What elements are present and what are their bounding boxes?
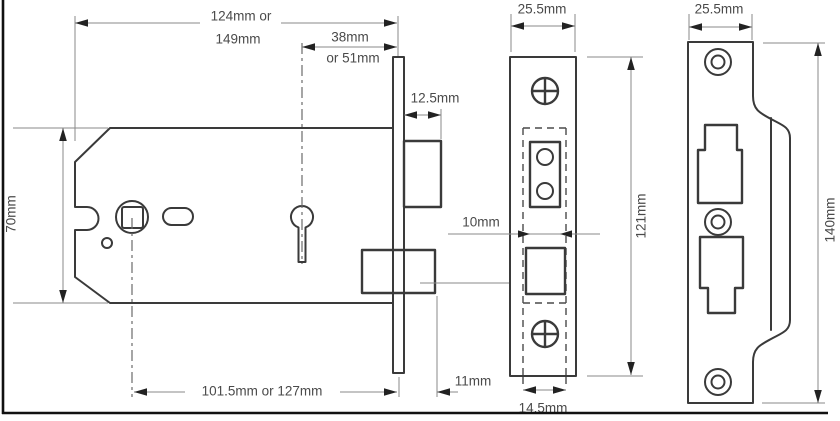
arrow-right-icon bbox=[739, 23, 752, 31]
arrow-right-icon bbox=[562, 22, 575, 30]
dim-strike-height-label: 140mm bbox=[823, 197, 838, 242]
deadbolt-cutout bbox=[700, 237, 743, 313]
dim-case-length-label-1: 124mm or bbox=[211, 9, 272, 24]
strike-screw-hole-bottom bbox=[705, 369, 731, 395]
arrow-down-icon bbox=[814, 390, 822, 403]
arrow-right-icon bbox=[553, 386, 566, 394]
arrow-left-icon bbox=[437, 388, 450, 396]
dim-backset-label-2: or 51mm bbox=[326, 51, 379, 66]
arrow-right-icon bbox=[384, 388, 397, 396]
dim-forend-height-label: 121mm bbox=[634, 193, 649, 238]
dim-case-height-label: 70mm bbox=[4, 195, 19, 233]
dim-latch-projection: 12.5mm bbox=[404, 91, 459, 140]
diagram-canvas: 124mm or 149mm 38mm or 51mm 12.5mm 70mm bbox=[0, 0, 840, 421]
arrow-down-icon bbox=[59, 290, 67, 303]
dim-latch-width: 10mm bbox=[448, 215, 600, 238]
lock-dimension-diagram: 124mm or 149mm 38mm or 51mm 12.5mm 70mm bbox=[0, 0, 840, 421]
arrow-right-icon bbox=[384, 43, 397, 51]
deadbolt-side bbox=[362, 250, 435, 293]
arrow-left-icon bbox=[511, 22, 524, 30]
arrow-right-icon bbox=[384, 19, 397, 27]
forend-dimensions: 25.5mm 10mm 121mm 14.5mm bbox=[448, 2, 649, 416]
dim-forend-width-label: 25.5mm bbox=[518, 2, 567, 17]
dim-bolt-throw: 11mm bbox=[437, 296, 491, 397]
dim-case-height: 70mm bbox=[4, 128, 109, 303]
arrow-left-icon bbox=[523, 386, 536, 394]
faceplate-edge bbox=[393, 57, 404, 373]
arrow-left-icon bbox=[75, 19, 88, 27]
dim-backset-label-1: 38mm bbox=[331, 30, 369, 45]
arrow-up-icon bbox=[814, 43, 822, 56]
dim-backset: 38mm or 51mm bbox=[302, 30, 397, 66]
strike-plate-outline bbox=[688, 42, 790, 403]
latch-cutout bbox=[698, 125, 742, 203]
arrow-left-icon bbox=[404, 111, 417, 119]
arrow-up-icon bbox=[627, 57, 635, 70]
dim-latch-width-label: 10mm bbox=[462, 215, 500, 230]
dim-case-length: 124mm or 149mm bbox=[75, 9, 398, 142]
latch-bolt-front bbox=[530, 142, 560, 207]
forend-front-view bbox=[510, 57, 576, 376]
oval-slot bbox=[163, 208, 193, 225]
arrow-left-icon bbox=[689, 23, 702, 31]
dim-centres: 101.5mm or 127mm bbox=[134, 377, 399, 399]
dim-bolt-throw-label: 11mm bbox=[455, 374, 492, 389]
latch-pin-bottom bbox=[537, 183, 553, 199]
small-fixing-hole bbox=[102, 238, 112, 248]
arrow-left-icon bbox=[302, 43, 315, 51]
side-view-dimensions: 124mm or 149mm 38mm or 51mm 12.5mm 70mm bbox=[4, 9, 492, 399]
latch-bolt-side bbox=[404, 141, 441, 207]
strike-plate-view bbox=[688, 42, 790, 403]
strike-screw-hole-top bbox=[705, 49, 731, 75]
dim-centres-label: 101.5mm or 127mm bbox=[202, 384, 323, 399]
dim-strike-height: 140mm bbox=[762, 43, 838, 403]
latch-pin-top bbox=[537, 149, 553, 165]
dim-forend-height: 121mm bbox=[587, 57, 649, 376]
arrow-up-icon bbox=[59, 128, 67, 141]
arrow-right-icon bbox=[518, 230, 530, 237]
arrow-left-icon bbox=[134, 388, 147, 396]
deadbolt-front bbox=[526, 248, 565, 294]
dim-case-length-label-2: 149mm bbox=[215, 32, 260, 47]
dim-strike-width-label: 25.5mm bbox=[695, 2, 744, 17]
screw-top bbox=[532, 78, 558, 104]
screw-bottom bbox=[532, 321, 558, 347]
dim-case-thickness: 14.5mm bbox=[519, 377, 568, 416]
strike-screw-hole-middle bbox=[705, 209, 731, 235]
dim-latch-projection-label: 12.5mm bbox=[411, 91, 460, 106]
arrow-down-icon bbox=[627, 362, 635, 375]
dim-strike-width: 25.5mm bbox=[689, 2, 752, 41]
dim-forend-width: 25.5mm bbox=[511, 2, 575, 53]
arrow-right-icon bbox=[428, 111, 441, 119]
